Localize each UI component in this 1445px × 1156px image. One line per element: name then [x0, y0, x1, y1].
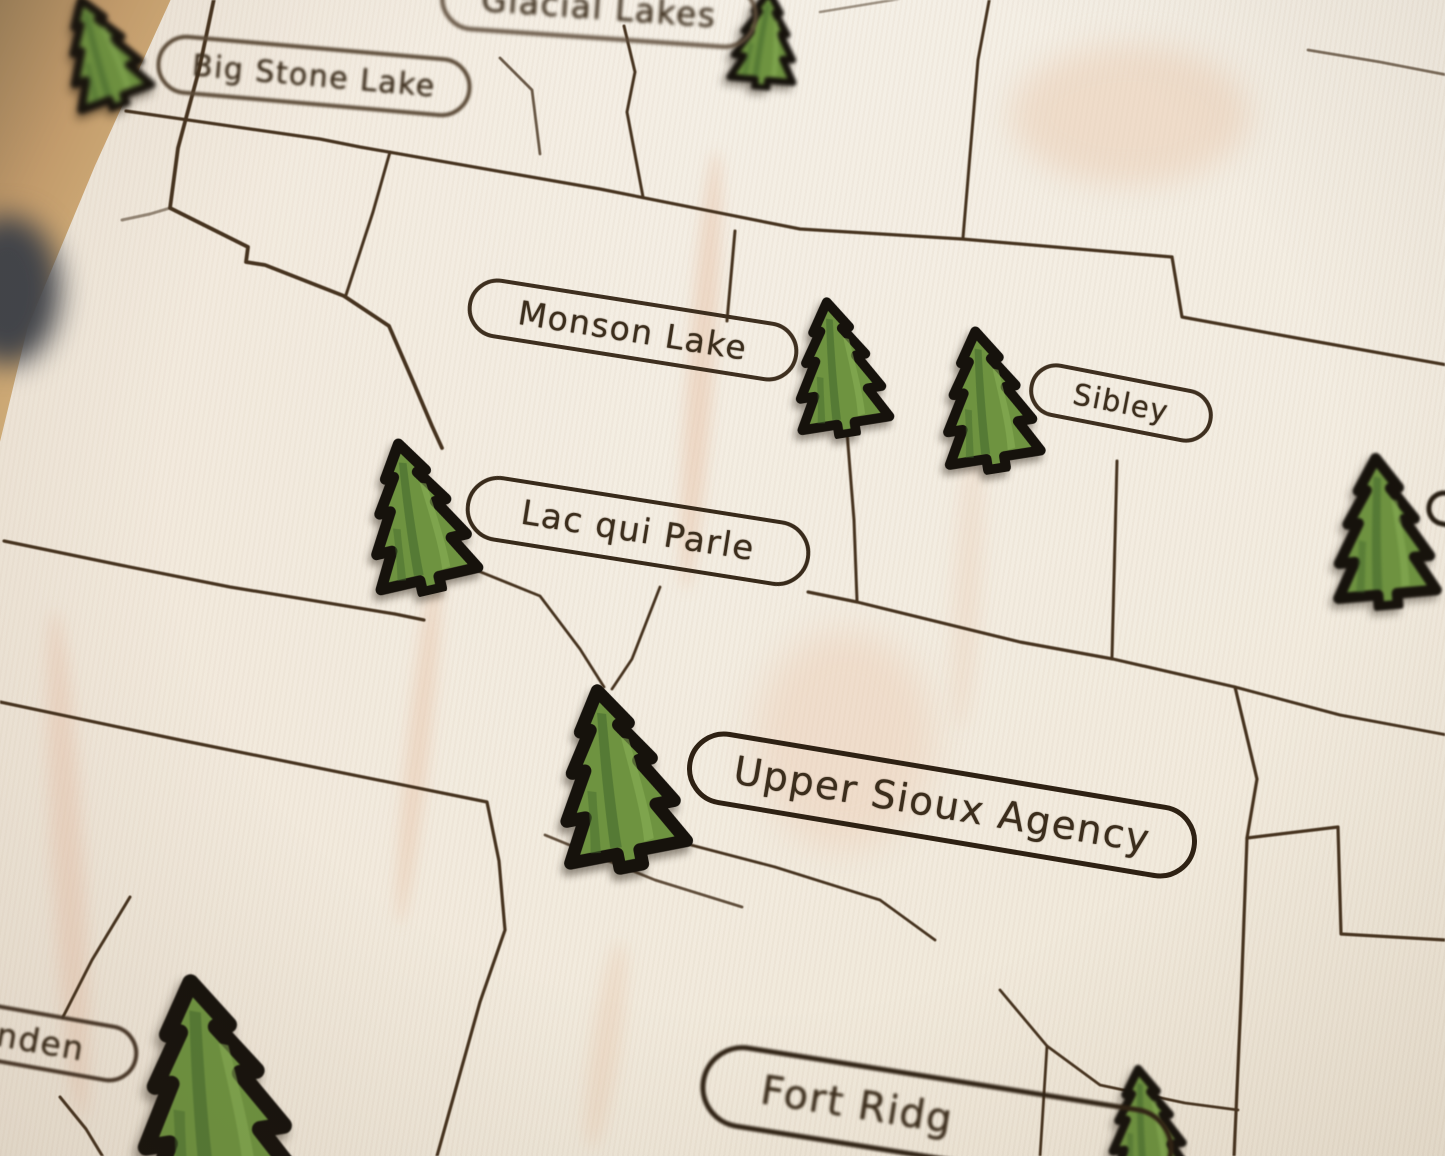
county-boundary — [346, 152, 390, 295]
county-boundary — [624, 26, 643, 197]
county-boundary — [820, 0, 905, 12]
park-label-text: Glacial Lakes — [480, 0, 718, 35]
county-boundary — [808, 592, 1235, 687]
park-label-text: Fort Ridg — [758, 1067, 957, 1143]
county-boundary — [1308, 50, 1445, 75]
county-boundary — [1247, 827, 1445, 940]
river-line — [1000, 990, 1047, 1046]
county-boundary — [60, 1097, 103, 1156]
wooden-map-photo: Glacial Lakes Big Stone Lake Monson Lake… — [0, 0, 1445, 1156]
park-label-text: nden — [0, 1014, 88, 1068]
county-boundary — [1235, 687, 1445, 735]
park-label-text: Big Stone Lake — [191, 48, 438, 104]
county-boundary — [126, 111, 1172, 257]
park-label-text: Sibley — [1070, 377, 1172, 429]
county-boundary — [727, 231, 735, 321]
state-border-fork — [122, 208, 170, 220]
county-boundary — [500, 58, 540, 154]
county-boundary — [1112, 461, 1117, 657]
county-boundary — [963, 0, 990, 238]
pine-tree-icon — [1313, 447, 1445, 615]
county-boundary — [1234, 687, 1257, 1156]
county-boundary — [1172, 257, 1445, 365]
county-boundary — [847, 432, 857, 601]
